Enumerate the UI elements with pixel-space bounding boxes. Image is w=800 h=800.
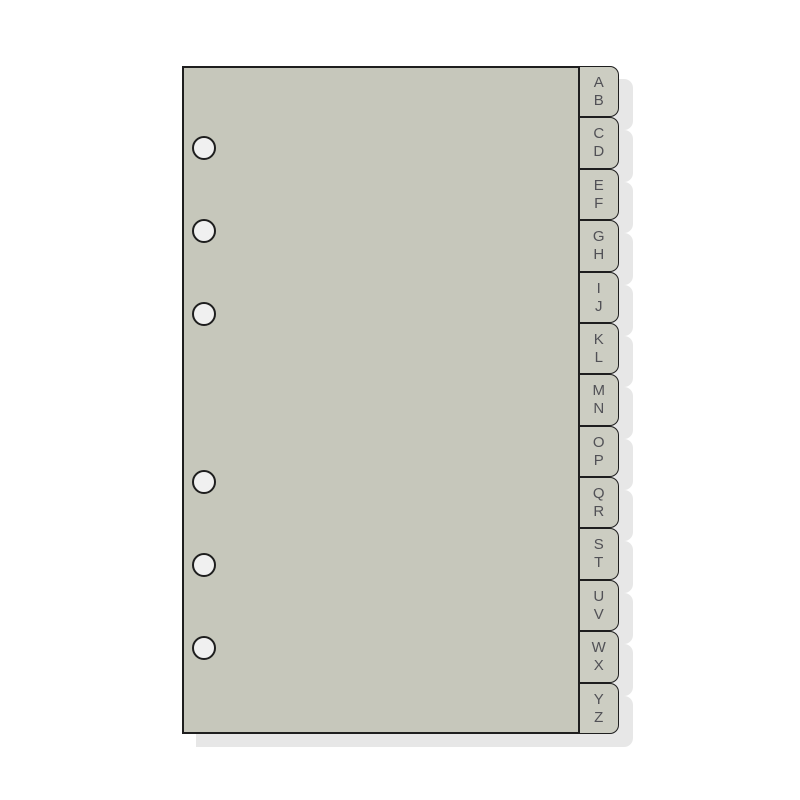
- punch-hole-5: [192, 553, 216, 577]
- tab-letter-bottom: P: [594, 452, 605, 470]
- tab-q-r[interactable]: Q R: [580, 477, 619, 528]
- tab-letter-top: S: [594, 536, 605, 554]
- punch-hole-6: [192, 636, 216, 660]
- tab-s-t[interactable]: S T: [580, 528, 619, 580]
- punch-hole-4: [192, 470, 216, 494]
- tab-i-j[interactable]: I J: [580, 272, 619, 323]
- tab-letter-bottom: B: [594, 92, 605, 110]
- tab-letter-top: C: [593, 125, 604, 143]
- tab-letter-bottom: H: [593, 246, 604, 264]
- tab-letter-top: E: [594, 177, 605, 195]
- tab-letter-bottom: F: [594, 195, 604, 213]
- tab-u-v[interactable]: U V: [580, 580, 619, 631]
- tab-letter-bottom: R: [593, 503, 604, 521]
- tab-letter-top: O: [593, 434, 605, 452]
- tab-letter-top: I: [597, 280, 602, 298]
- tab-letter-top: K: [594, 331, 605, 349]
- tab-letter-bottom: V: [594, 606, 605, 624]
- tab-letter-top: A: [594, 74, 605, 92]
- tab-letter-top: W: [592, 639, 607, 657]
- tab-letter-bottom: X: [594, 657, 605, 675]
- tab-o-p[interactable]: O P: [580, 426, 619, 477]
- punch-hole-1: [192, 136, 216, 160]
- tab-w-x[interactable]: W X: [580, 631, 619, 683]
- tab-letter-bottom: N: [593, 400, 604, 418]
- tab-letter-top: G: [593, 228, 605, 246]
- tab-letter-top: Q: [593, 485, 605, 503]
- punch-hole-2: [192, 219, 216, 243]
- tab-letter-bottom: D: [593, 143, 604, 161]
- tab-letter-top: U: [593, 588, 604, 606]
- tab-letter-bottom: J: [595, 298, 603, 316]
- tab-e-f[interactable]: E F: [580, 169, 619, 220]
- tab-letter-top: M: [593, 382, 606, 400]
- divider-sheet: A B C D E F G H I J K L M N O P: [0, 0, 800, 800]
- tab-k-l[interactable]: K L: [580, 323, 619, 374]
- tab-letter-bottom: L: [595, 349, 604, 367]
- tab-g-h[interactable]: G H: [580, 220, 619, 272]
- divider-illustration: A B C D E F G H I J K L M N O P: [0, 0, 800, 800]
- divider-page: [182, 66, 580, 734]
- tab-letter-bottom: Z: [594, 709, 604, 727]
- tab-m-n[interactable]: M N: [580, 374, 619, 426]
- tab-y-z[interactable]: Y Z: [580, 683, 619, 734]
- tab-letter-bottom: T: [594, 554, 604, 572]
- tab-letter-top: Y: [594, 691, 605, 709]
- tab-a-b[interactable]: A B: [580, 66, 619, 117]
- tab-c-d[interactable]: C D: [580, 117, 619, 169]
- punch-hole-3: [192, 302, 216, 326]
